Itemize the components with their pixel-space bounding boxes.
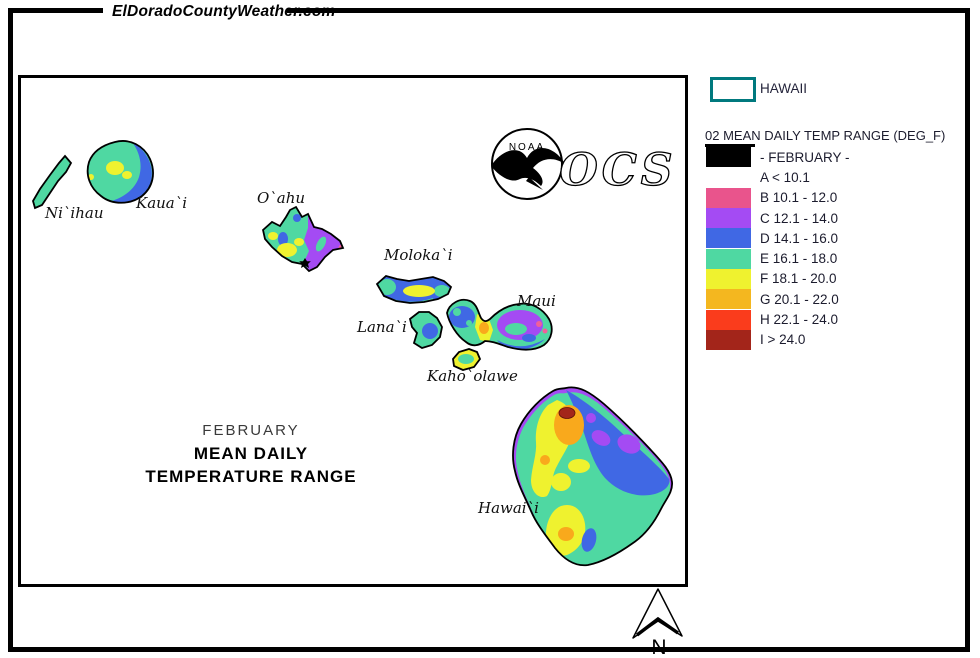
island-label-oahu: O`ahu bbox=[257, 189, 305, 207]
legend-label: G 20.1 - 22.0 bbox=[760, 292, 839, 307]
island-label-niihau: Ni`ihau bbox=[45, 204, 103, 222]
legend-row: F 18.1 - 20.0 bbox=[706, 269, 850, 289]
legend-label: I > 24.0 bbox=[760, 332, 805, 347]
legend-label: E 16.1 - 18.0 bbox=[760, 251, 837, 266]
legend-label: A < 10.1 bbox=[760, 170, 810, 185]
legend-swatch-e bbox=[706, 249, 751, 269]
north-arrow-icon: N bbox=[616, 584, 702, 658]
legend-label: D 14.1 - 16.0 bbox=[760, 231, 838, 246]
legend-region-label: HAWAII bbox=[760, 81, 807, 96]
legend-swatch-c bbox=[706, 208, 751, 228]
map-title: FEBRUARY MEAN DAILY TEMPERATURE RANGE bbox=[126, 419, 376, 488]
island-label-kahoolawe: Kaho`olawe bbox=[427, 367, 518, 385]
island-lanai bbox=[410, 312, 442, 348]
legend-swatch-h bbox=[706, 310, 751, 330]
legend-row: B 10.1 - 12.0 bbox=[706, 188, 850, 208]
legend-row: C 12.1 - 14.0 bbox=[706, 208, 850, 228]
legend-swatch-b bbox=[706, 188, 751, 208]
legend-label: H 22.1 - 24.0 bbox=[760, 312, 838, 327]
legend: - FEBRUARY - A < 10.1 B 10.1 - 12.0 C 12… bbox=[706, 147, 850, 350]
map-frame: NOAA OCS Ni`ihau Kaua`i O`ahu Moloka`i L… bbox=[18, 75, 688, 587]
legend-swatch-g bbox=[706, 289, 751, 309]
legend-label: - FEBRUARY - bbox=[760, 150, 850, 165]
ocs-logo: OCS bbox=[559, 145, 676, 196]
island-label-maui: Maui bbox=[517, 292, 556, 310]
legend-swatch-f bbox=[706, 269, 751, 289]
island-niihau bbox=[33, 156, 71, 208]
legend-region-box bbox=[710, 77, 756, 102]
legend-swatch-february bbox=[706, 147, 751, 167]
island-label-hawaii: Hawai`i bbox=[478, 499, 539, 517]
island-label-kauai: Kaua`i bbox=[136, 194, 187, 212]
island-oahu bbox=[263, 207, 346, 271]
map-title-line2: MEAN DAILY bbox=[126, 442, 376, 465]
page: ElDoradoCountyWeather.com bbox=[0, 0, 980, 658]
legend-row: G 20.1 - 22.0 bbox=[706, 289, 850, 309]
legend-swatch-d bbox=[706, 228, 751, 248]
island-molokai bbox=[377, 276, 451, 304]
legend-row: E 16.1 - 18.0 bbox=[706, 248, 850, 268]
legend-label: B 10.1 - 12.0 bbox=[760, 190, 837, 205]
legend-title: 02 MEAN DAILY TEMP RANGE (DEG_F) bbox=[705, 128, 945, 143]
legend-row: I > 24.0 bbox=[706, 330, 850, 350]
map-title-month: FEBRUARY bbox=[126, 419, 376, 442]
hawaii-map-svg: NOAA OCS bbox=[21, 78, 685, 584]
noaa-logo-icon: NOAA bbox=[491, 129, 565, 199]
legend-row: H 22.1 - 24.0 bbox=[706, 309, 850, 329]
island-hawaii bbox=[513, 387, 672, 566]
island-label-lanai: Lana`i bbox=[357, 318, 407, 336]
north-arrow-label: N bbox=[651, 636, 666, 658]
legend-label: C 12.1 - 14.0 bbox=[760, 211, 838, 226]
legend-swatch-a bbox=[706, 167, 751, 187]
legend-row: - FEBRUARY - bbox=[706, 147, 850, 167]
island-label-molokai: Moloka`i bbox=[384, 246, 453, 264]
legend-row: A < 10.1 bbox=[706, 167, 850, 187]
legend-label: F 18.1 - 20.0 bbox=[760, 271, 837, 286]
legend-swatch-i bbox=[706, 330, 751, 350]
site-title[interactable]: ElDoradoCountyWeather.com bbox=[112, 3, 335, 21]
map-title-line3: TEMPERATURE RANGE bbox=[126, 465, 376, 488]
legend-row: D 14.1 - 16.0 bbox=[706, 228, 850, 248]
